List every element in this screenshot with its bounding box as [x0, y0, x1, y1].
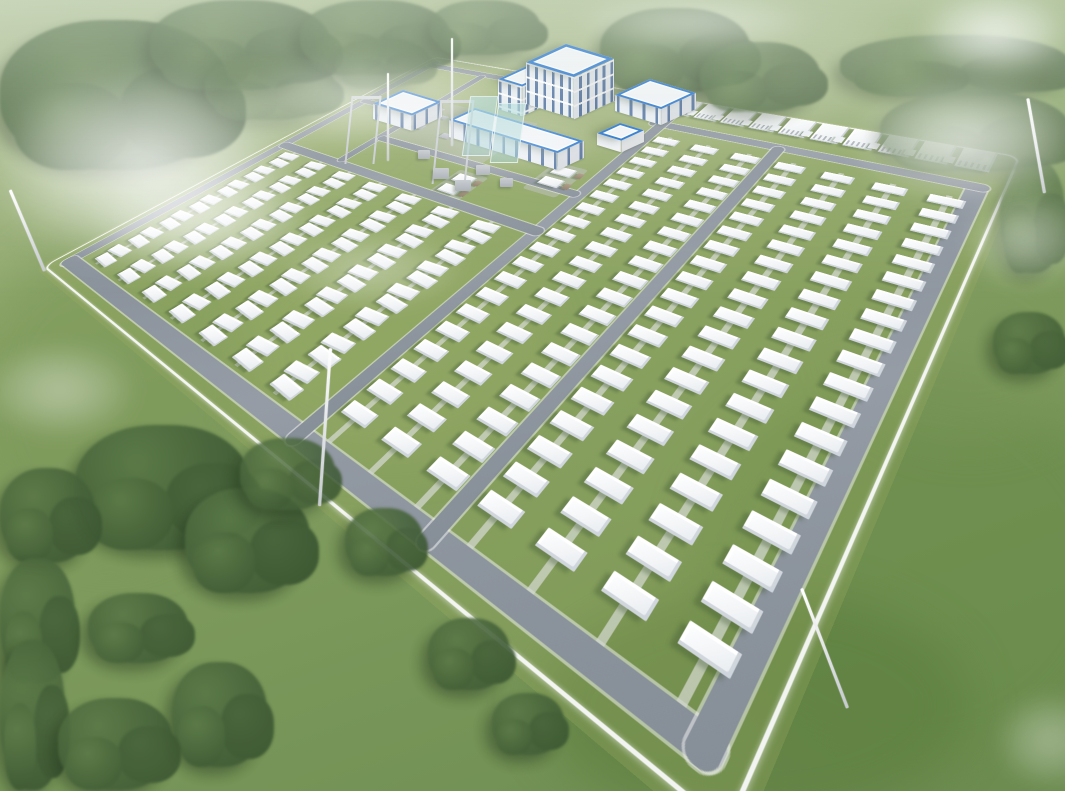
tree-cluster — [430, 0, 540, 55]
tree-canopy — [341, 59, 389, 88]
transformer-unit — [500, 178, 513, 187]
tree-canopy — [997, 338, 1033, 374]
tree-canopy — [707, 71, 767, 112]
tree-canopy — [1004, 206, 1037, 273]
tree-canopy — [246, 468, 294, 510]
tree-canopy — [273, 75, 345, 115]
tree-canopy — [384, 53, 436, 84]
tree-canopy — [6, 508, 54, 563]
tree-cluster — [0, 640, 65, 790]
transformer-unit — [455, 180, 471, 191]
tree-canopy — [433, 648, 474, 690]
transformer-unit — [418, 150, 430, 159]
lightning-mast — [387, 73, 389, 161]
tree-canopy — [891, 126, 986, 172]
tree-cluster — [172, 662, 267, 767]
tree-canopy — [14, 83, 129, 170]
tree-cluster — [0, 468, 95, 563]
tree-cluster — [993, 312, 1065, 374]
tree-canopy — [496, 719, 532, 755]
tree-cluster — [700, 42, 820, 112]
tree-canopy — [178, 706, 226, 767]
tree-canopy — [1034, 193, 1065, 264]
tree-canopy — [140, 614, 195, 657]
tree-canopy — [960, 54, 1065, 92]
lightning-mast — [451, 38, 453, 146]
tree-canopy — [529, 712, 569, 750]
tree-canopy — [289, 460, 341, 505]
tree-canopy — [471, 640, 516, 685]
tree-cluster — [58, 698, 173, 790]
tree-canopy — [221, 694, 273, 759]
lightning-mast — [8, 189, 45, 271]
tree-cluster — [205, 55, 335, 120]
tree-canopy — [4, 703, 37, 790]
transformer-unit — [433, 168, 449, 179]
tree-canopy — [350, 537, 389, 576]
tree-cluster — [492, 693, 564, 755]
tree-canopy — [437, 23, 492, 55]
tree-canopy — [1030, 331, 1065, 369]
tree-canopy — [193, 532, 256, 593]
battery-storage-plant-aerial-render — [0, 0, 1065, 791]
tree-canopy — [762, 63, 828, 106]
tree-canopy — [213, 82, 278, 120]
tree-cluster — [840, 35, 1065, 97]
tree-canopy — [94, 622, 144, 663]
transformer-unit — [476, 165, 490, 175]
tree-cluster — [1000, 158, 1065, 273]
tree-cluster — [88, 593, 188, 663]
tree-cluster — [428, 618, 510, 690]
tree-canopy — [65, 737, 123, 790]
tree-canopy — [386, 528, 429, 570]
tree-canopy — [118, 726, 181, 783]
tree-canopy — [487, 17, 548, 51]
tree-cluster — [335, 38, 430, 88]
tree-canopy — [49, 497, 101, 556]
tree-canopy — [250, 520, 319, 585]
tree-cluster — [345, 508, 423, 576]
